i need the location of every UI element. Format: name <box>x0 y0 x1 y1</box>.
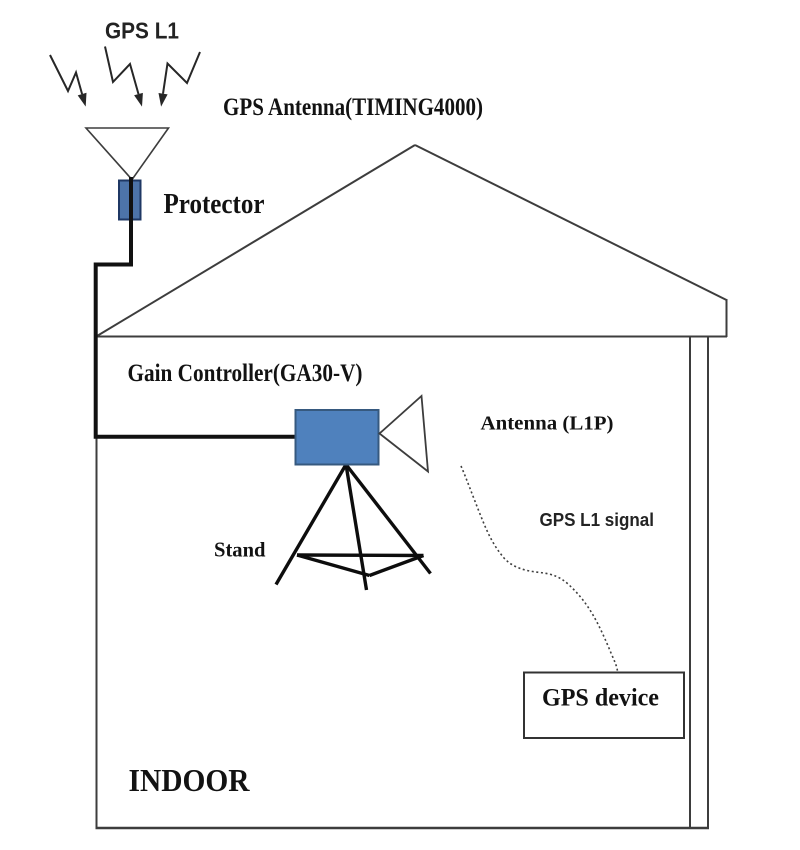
svg-text:Gain Controller(GA30-V): Gain Controller(GA30-V) <box>128 360 363 387</box>
svg-text:INDOOR: INDOOR <box>129 762 251 798</box>
svg-text:GPS L1 signal: GPS L1 signal <box>540 510 655 530</box>
svg-text:Protector: Protector <box>164 188 265 220</box>
svg-text:Stand: Stand <box>214 538 266 562</box>
svg-text:GPS Antenna(TIMING4000): GPS Antenna(TIMING4000) <box>223 94 483 121</box>
svg-text:GPS device: GPS device <box>542 685 659 712</box>
svg-text:GPS L1: GPS L1 <box>105 18 179 44</box>
svg-text:Antenna (L1P): Antenna (L1P) <box>481 413 614 435</box>
